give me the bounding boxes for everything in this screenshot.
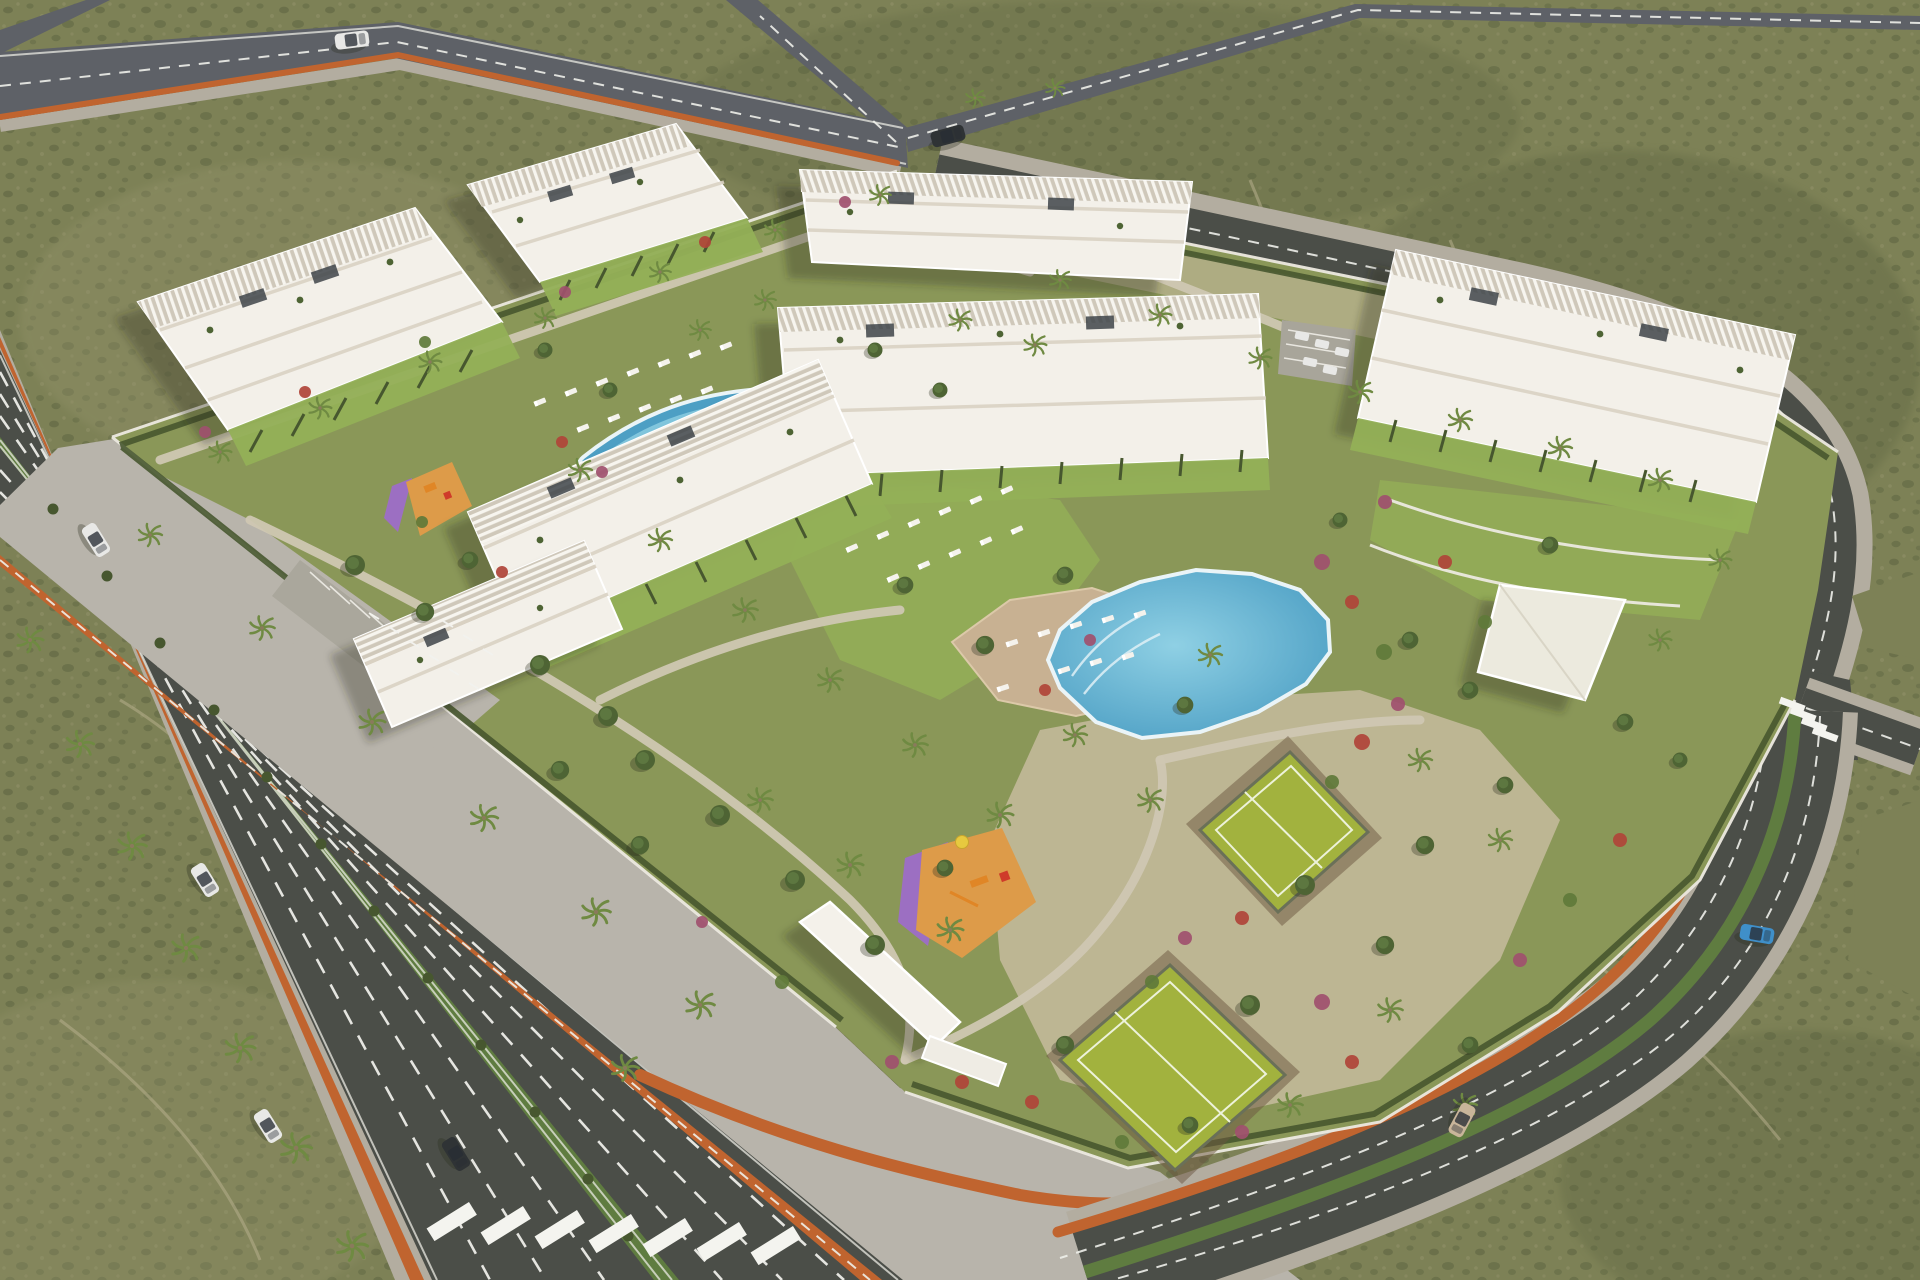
apartment-building-3: [776, 170, 1192, 296]
umbrella-yellow: [956, 836, 969, 849]
scene-canvas: Aerial rendering of a modern white apart…: [0, 0, 1920, 1280]
aerial-render: Aerial rendering of a modern white apart…: [0, 0, 1920, 1280]
